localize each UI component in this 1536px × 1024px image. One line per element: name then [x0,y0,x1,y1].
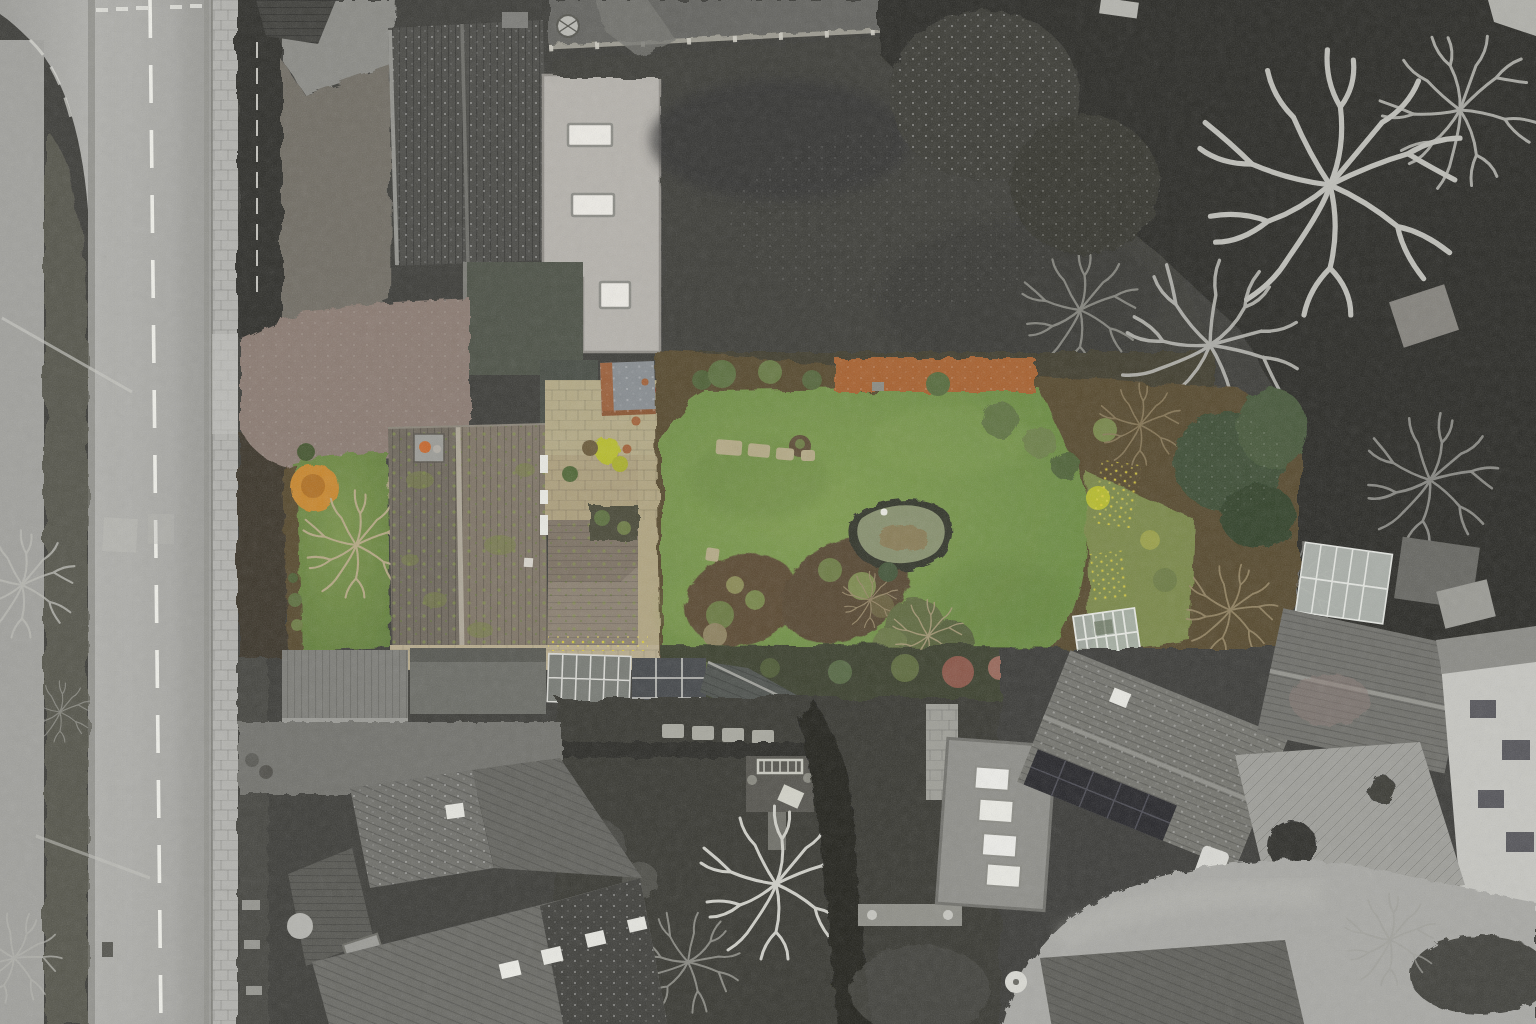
photo-grain-coarse [0,0,1536,1024]
aerial-photo [0,0,1536,1024]
aerial-photo-canvas [0,0,1536,1024]
